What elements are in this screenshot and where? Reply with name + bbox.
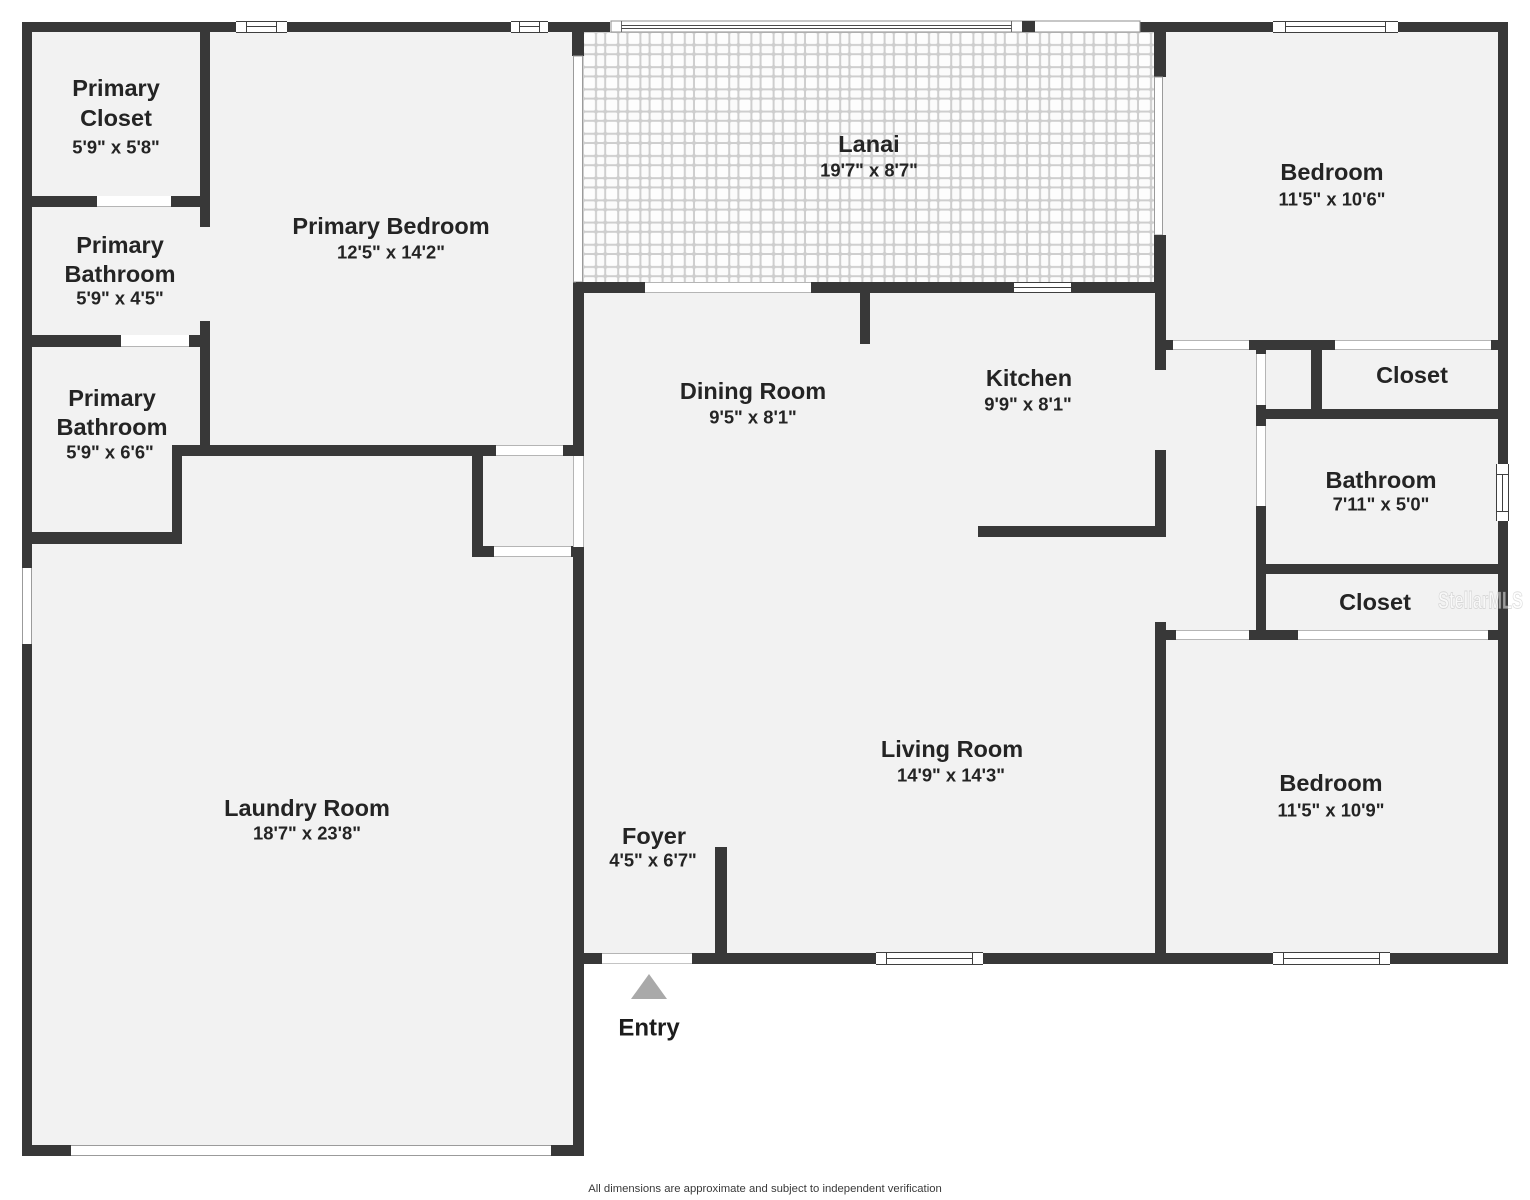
svg-text:14'9" x 14'3": 14'9" x 14'3" xyxy=(897,765,1005,786)
svg-text:9'5" x 8'1": 9'5" x 8'1" xyxy=(709,407,797,428)
svg-text:18'7" x 23'8": 18'7" x 23'8" xyxy=(253,823,361,844)
svg-text:5'9" x 4'5": 5'9" x 4'5" xyxy=(76,288,164,309)
svg-text:Kitchen: Kitchen xyxy=(986,365,1072,391)
svg-text:Laundry Room: Laundry Room xyxy=(224,795,390,821)
svg-text:StellarMLS: StellarMLS xyxy=(1438,588,1523,615)
svg-text:7'11" x 5'0": 7'11" x 5'0" xyxy=(1333,494,1430,515)
svg-text:Closet: Closet xyxy=(80,105,152,131)
svg-text:Foyer: Foyer xyxy=(622,823,686,849)
svg-text:All dimensions are approximate: All dimensions are approximate and subje… xyxy=(588,1183,942,1195)
svg-text:5'9" x 5'8": 5'9" x 5'8" xyxy=(72,137,160,158)
svg-text:Bathroom: Bathroom xyxy=(65,261,176,287)
svg-text:19'7" x 8'7": 19'7" x 8'7" xyxy=(820,160,918,181)
svg-text:Primary: Primary xyxy=(76,232,164,258)
svg-text:5'9" x 6'6": 5'9" x 6'6" xyxy=(66,442,154,463)
svg-text:Bathroom: Bathroom xyxy=(1326,467,1437,493)
svg-text:Closet: Closet xyxy=(1376,362,1448,388)
svg-text:Primary Bedroom: Primary Bedroom xyxy=(292,213,489,239)
svg-text:12'5" x 14'2": 12'5" x 14'2" xyxy=(337,242,445,263)
svg-text:Primary: Primary xyxy=(68,385,156,411)
svg-text:4'5" x 6'7": 4'5" x 6'7" xyxy=(609,850,697,871)
svg-text:Bedroom: Bedroom xyxy=(1280,159,1383,185)
svg-text:Primary: Primary xyxy=(72,75,160,101)
svg-text:Dining Room: Dining Room xyxy=(680,378,826,404)
svg-text:9'9" x 8'1": 9'9" x 8'1" xyxy=(984,394,1072,415)
svg-text:Lanai: Lanai xyxy=(838,131,899,157)
svg-text:Closet: Closet xyxy=(1339,589,1411,615)
svg-text:Entry: Entry xyxy=(618,1015,680,1042)
svg-text:Bathroom: Bathroom xyxy=(57,414,168,440)
svg-text:Living Room: Living Room xyxy=(881,736,1023,762)
svg-text:11'5" x 10'9": 11'5" x 10'9" xyxy=(1278,800,1385,821)
svg-text:Bedroom: Bedroom xyxy=(1279,770,1382,796)
svg-text:11'5" x 10'6": 11'5" x 10'6" xyxy=(1279,189,1386,210)
